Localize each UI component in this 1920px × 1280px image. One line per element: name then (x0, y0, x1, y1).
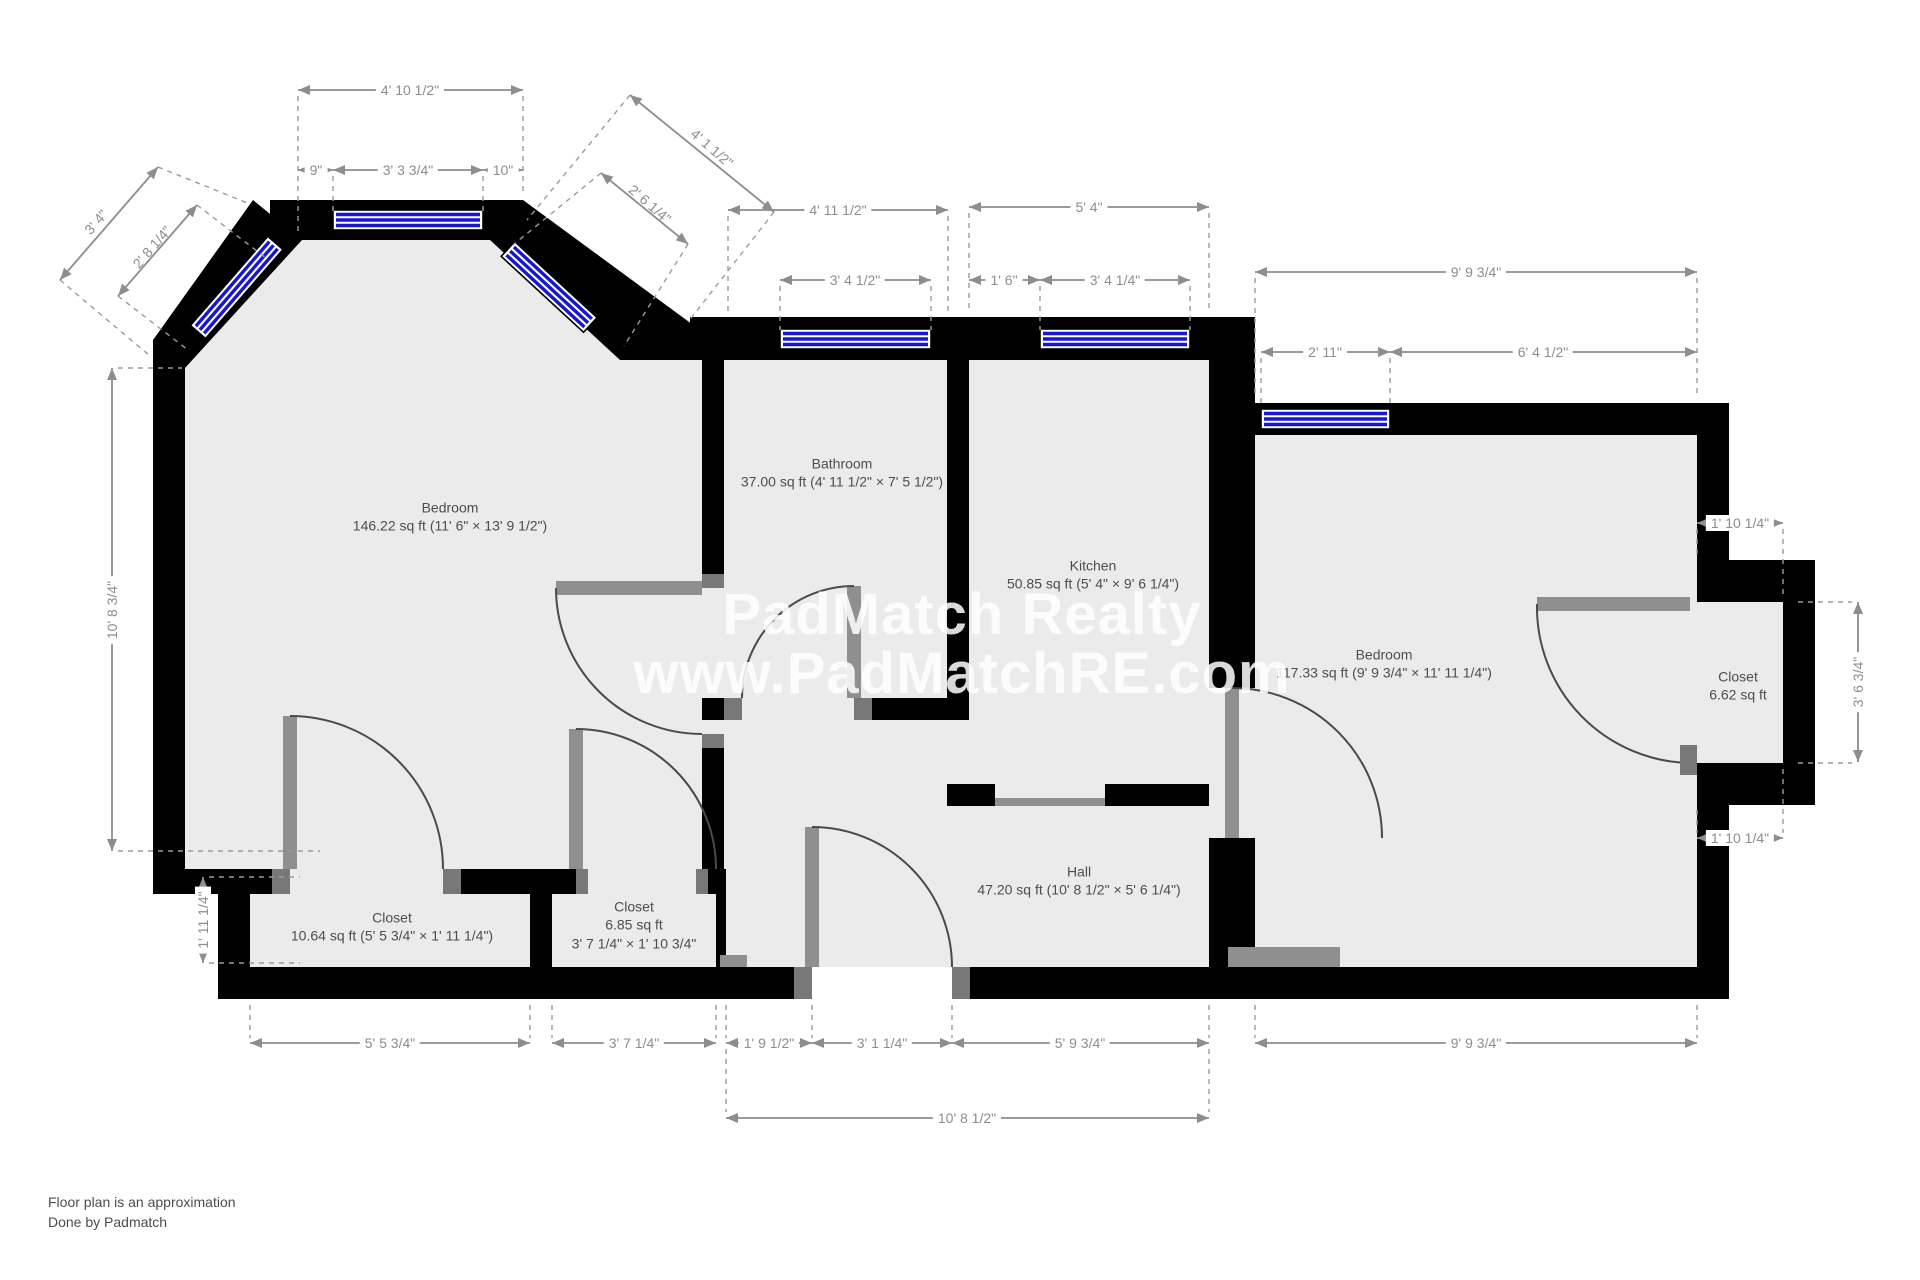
dim-label-closet-right-depth-bottom: 1' 10 1/4" (1706, 830, 1774, 846)
dim-label-bed2-window: 2' 11" (1303, 344, 1347, 360)
room-area: 10.64 sq ft (5' 5 3/4" × 1' 11 1/4") (291, 927, 493, 945)
dim-label-bed2-width-bottom: 9' 9 3/4" (1446, 1035, 1506, 1051)
window-bathroom (780, 329, 931, 349)
footer-line1: Floor plan is an approximation (48, 1192, 236, 1212)
dim-label-closet-left-height: 1' 11 1/4" (195, 886, 211, 953)
dim-label-bed2-wall-right: 6' 4 1/2" (1513, 344, 1573, 360)
room-area-2: 3' 7 1/4" × 1' 10 3/4" (572, 934, 697, 952)
threshold-accent (995, 798, 1105, 806)
dim-label-closet-left-width: 5' 5 3/4" (360, 1035, 420, 1051)
wall-segment (443, 869, 576, 894)
room-area: 6.62 sq ft (1709, 686, 1767, 704)
wall-segment (702, 734, 724, 869)
wall-segment (716, 869, 726, 967)
dim-label-bed1-height: 10' 8 3/4" (104, 576, 120, 644)
room-area: 6.85 sq ft (572, 916, 697, 934)
room-area: 117.33 sq ft (9' 9 3/4" × 11' 11 1/4") (1276, 664, 1492, 682)
window-bedroom-2 (1261, 409, 1390, 429)
dim-label-kitchen-left: 1' 6" (985, 272, 1022, 288)
room-label-bedroom-1: Bedroom 146.22 sq ft (11' 6" × 13' 9 1/2… (353, 499, 547, 536)
room-label-closet-left: Closet 10.64 sq ft (5' 5 3/4" × 1' 11 1/… (291, 909, 493, 946)
room-area: 146.22 sq ft (11' 6" × 13' 9 1/2") (353, 517, 547, 535)
floor-plan-page: 4' 10 1/2" 9" 3' 3 3/4" 10" 3' 4" 2' 8 1… (0, 0, 1920, 1280)
room-label-closet-mid: Closet 6.85 sq ft 3' 7 1/4" × 1' 10 3/4" (572, 897, 697, 952)
wall-segment (1783, 602, 1815, 763)
dim-label-kitchen-window: 3' 4 1/4" (1085, 272, 1145, 288)
sill-accent (720, 955, 747, 967)
dim-label-bay-left: 9" (305, 162, 328, 178)
room-name: Bedroom (1276, 646, 1492, 664)
wall-segment (1697, 560, 1815, 602)
wall-segment (218, 894, 250, 999)
room-name: Closet (291, 909, 493, 927)
dim-label-closet-right-height: 3' 6 3/4" (1850, 652, 1866, 712)
wall-segment (153, 352, 185, 894)
room-name: Bedroom (353, 499, 547, 517)
wall-segment (1105, 784, 1209, 806)
room-name: Kitchen (1007, 557, 1179, 575)
wall-segment (218, 967, 812, 999)
dim-label-bay-right: 10" (488, 162, 519, 178)
room-name: Bathroom (741, 455, 943, 473)
room-area: 37.00 sq ft (4' 11 1/2" × 7' 5 1/2") (741, 473, 943, 491)
dim-label-vestibule-width: 1' 9 1/2" (739, 1035, 799, 1051)
footer-note: Floor plan is an approximation Done by P… (48, 1192, 236, 1233)
watermark: PadMatch Realty www.PadMatchRE.com (633, 585, 1290, 703)
dim-label-bay-total: 4' 10 1/2" (376, 82, 444, 98)
room-label-bedroom-2: Bedroom 117.33 sq ft (9' 9 3/4" × 11' 11… (1276, 646, 1492, 683)
wall-segment (153, 869, 290, 894)
room-name: Closet (1709, 668, 1767, 686)
sill-accent (1228, 947, 1340, 967)
dim-label-kitchen-width: 5' 4" (1070, 199, 1107, 215)
room-name: Closet (572, 897, 697, 915)
room-label-hall: Hall 47.20 sq ft (10' 8 1/2" × 5' 6 1/4"… (977, 863, 1180, 900)
dim-label-bay-window: 3' 3 3/4" (378, 162, 438, 178)
wall-segment (1697, 763, 1815, 805)
dim-label-closet-right-depth-top: 1' 10 1/4" (1706, 515, 1774, 531)
dim-label-hall-right-width: 5' 9 3/4" (1050, 1035, 1110, 1051)
footer-line2: Done by Padmatch (48, 1212, 236, 1232)
window-kitchen (1040, 329, 1190, 349)
dim-label-entry-width: 3' 1 1/4" (852, 1035, 912, 1051)
room-label-closet-right: Closet 6.62 sq ft (1709, 668, 1767, 705)
watermark-line1: PadMatch Realty (633, 585, 1290, 644)
wall-segment (952, 967, 1729, 999)
wall-segment (530, 894, 552, 967)
dim-label-hall-total-width: 10' 8 1/2" (933, 1110, 1001, 1126)
room-label-bathroom: Bathroom 37.00 sq ft (4' 11 1/2" × 7' 5 … (741, 455, 943, 492)
dim-label-closet-mid-width: 3' 7 1/4" (604, 1035, 664, 1051)
room-area: 47.20 sq ft (10' 8 1/2" × 5' 6 1/4") (977, 881, 1180, 899)
window-bay-center (333, 210, 483, 230)
watermark-line2: www.PadMatchRE.com (633, 644, 1290, 703)
wall-segment (947, 784, 995, 806)
dim-label-bath-window: 3' 4 1/2" (825, 272, 885, 288)
dim-label-bed2-width-top: 9' 9 3/4" (1446, 264, 1506, 280)
wall-segment (702, 360, 724, 588)
room-name: Hall (977, 863, 1180, 881)
dim-label-bath-width: 4' 11 1/2" (804, 202, 871, 218)
